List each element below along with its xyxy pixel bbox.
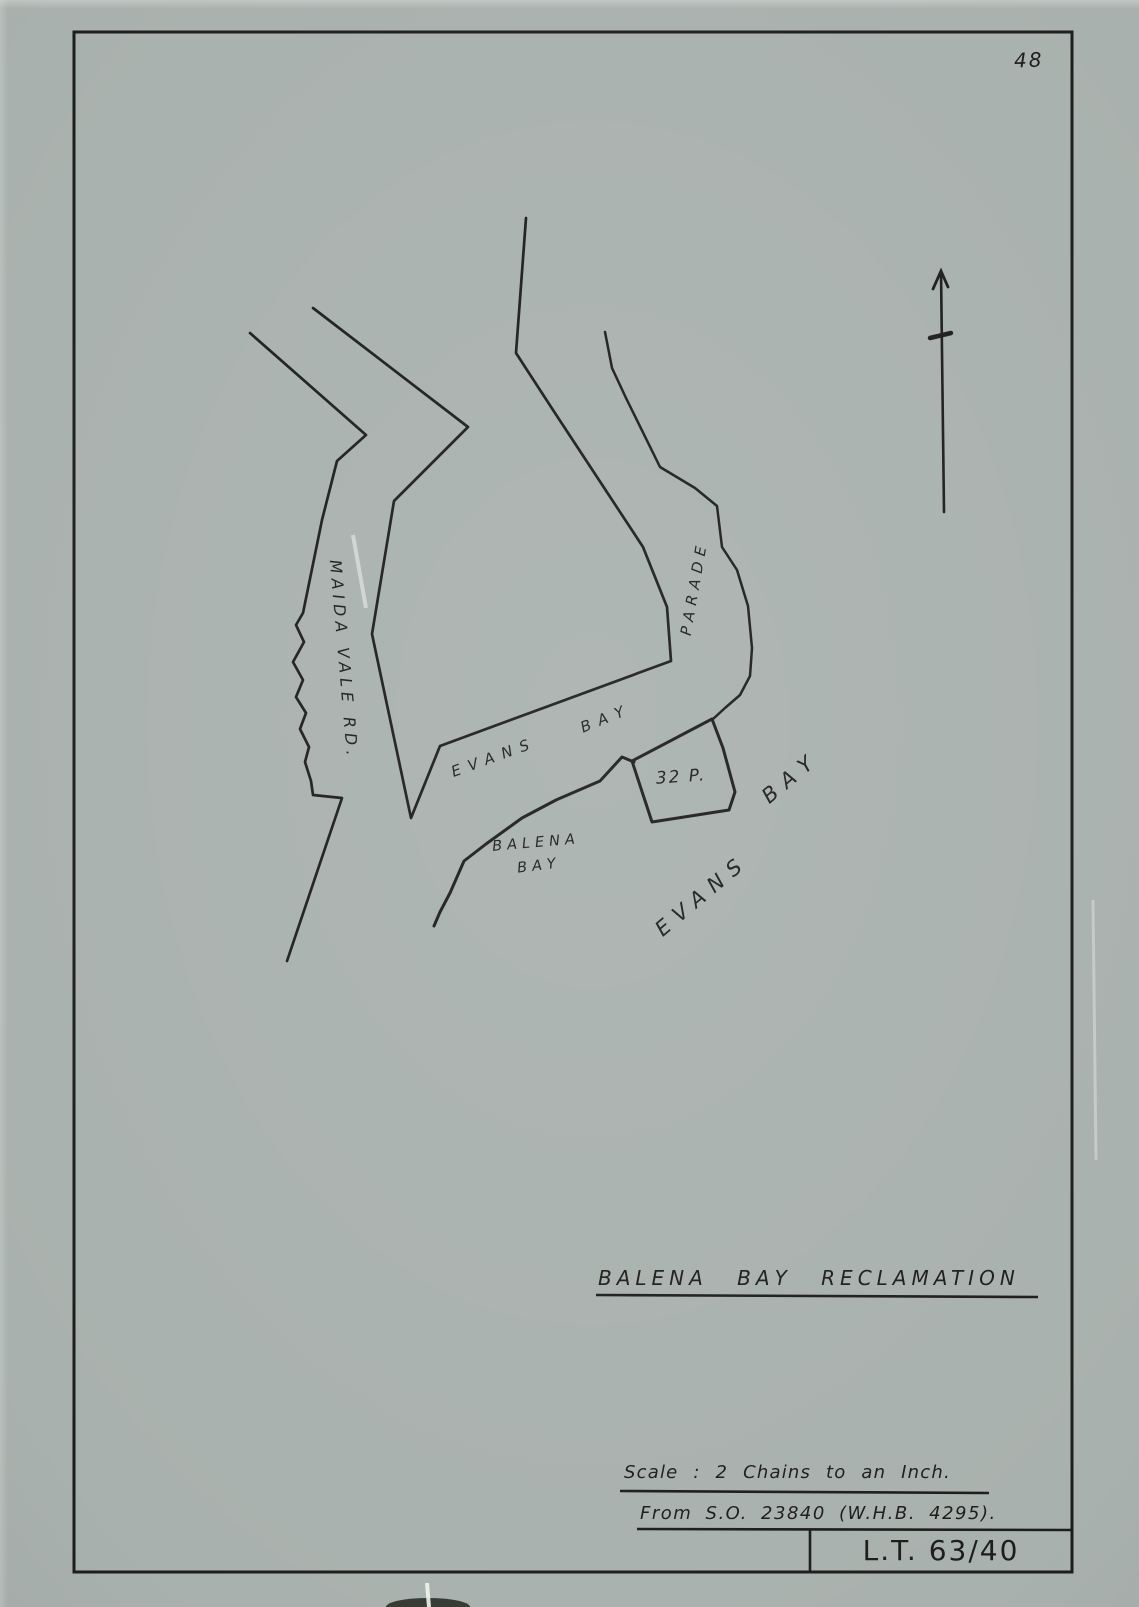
scan-scratch-left [353,535,366,608]
source-note: From S.O. 23840 (W.H.B. 4295). [640,1503,997,1524]
evans-bay-parade-east-line [605,332,752,719]
page-border [74,32,1072,1572]
plan-reference: L.T. 63/40 [812,1531,1070,1571]
scanned-survey-plan-page: 48 MAIDA VALE RD. EVANS BAY PARADE 32 P.… [0,0,1139,1607]
page-number: 48 [1014,47,1044,72]
plan-title: BALENA BAY RECLAMATION [598,1266,1020,1290]
reclamation-outline [313,218,671,818]
title-underline [596,1295,1038,1297]
source-underline-box-top [637,1529,1072,1530]
scale-underline [620,1491,989,1493]
scan-scratch-bottom [427,1583,429,1607]
parcel-32p-label: 32 P. [655,765,707,788]
scale-note: Scale : 2 Chains to an Inch. [624,1462,951,1483]
map-linework [0,0,1139,1607]
north-arrow-crossbar [930,333,951,338]
scan-scratch-right [1093,900,1096,1160]
north-arrow-shaft [941,271,944,512]
north-arrow-icon [930,271,951,512]
